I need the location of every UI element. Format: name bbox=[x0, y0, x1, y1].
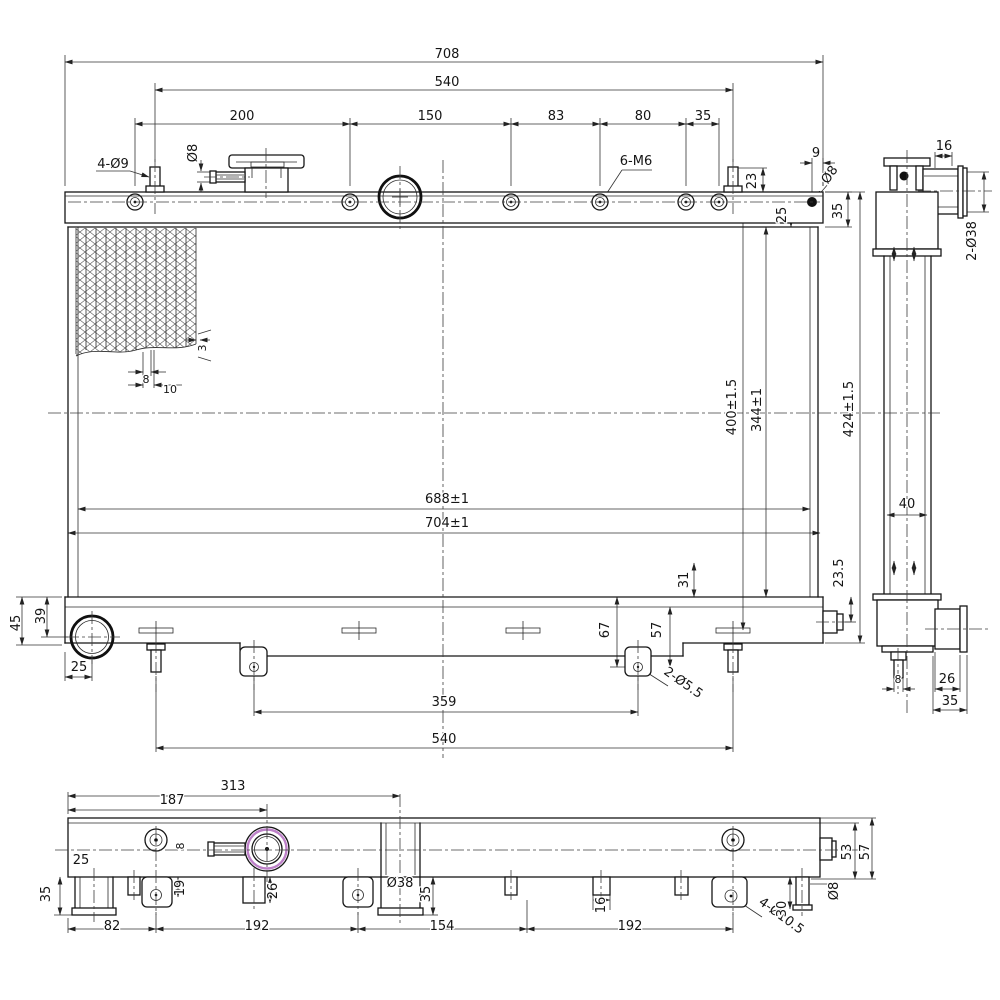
dim-label-front-10: 23 bbox=[745, 173, 760, 190]
dim-label-front-4: 83 bbox=[548, 109, 565, 124]
dim-label-front-28: 25 bbox=[71, 660, 88, 675]
radiator-drawing-page: Radiator three-view dimensional engineer… bbox=[0, 0, 1000, 1000]
dim-label-side-38: 35 bbox=[942, 694, 959, 709]
dim-label-side-36: 8 bbox=[895, 673, 902, 686]
dim-label-side-25: 40 bbox=[899, 497, 916, 512]
dim-label-side-37: 26 bbox=[939, 672, 956, 687]
dim-label-bottom-55: Ø8 bbox=[827, 882, 842, 901]
dim-label-bottom-50: 192 bbox=[245, 919, 270, 934]
side-core bbox=[884, 247, 931, 594]
dim-label-front-7: 4-Ø9 bbox=[97, 157, 128, 172]
dim-label-front-31: 67 bbox=[598, 622, 613, 639]
tab bbox=[593, 877, 610, 895]
dim-label-front-20: 688±1 bbox=[425, 492, 469, 507]
bottom-drain-pin bbox=[793, 877, 812, 910]
tab bbox=[675, 877, 688, 895]
dim-label-front-12: Ø8 bbox=[819, 163, 842, 187]
overflow-tube bbox=[213, 843, 245, 855]
dim-label-front-33: 2-Ø5.5 bbox=[661, 664, 706, 701]
dim-label-front-9: 6-M6 bbox=[620, 154, 652, 169]
dim-label-front-23: 344±1 bbox=[750, 388, 765, 432]
bottom-tank bbox=[65, 597, 843, 676]
radiator-drawing: Radiator three-view dimensional engineer… bbox=[0, 0, 1000, 1000]
dim-label-bottom-46: Ø38 bbox=[387, 876, 414, 891]
dim-label-bottom-42: 8 bbox=[174, 843, 187, 850]
bracket-82 bbox=[142, 877, 172, 907]
dim-label-front-34: 359 bbox=[432, 695, 457, 710]
dim-label-bottom-44: 19 bbox=[173, 880, 188, 897]
side-view bbox=[873, 158, 967, 678]
dim-label-bottom-52: 192 bbox=[618, 919, 643, 934]
dim-label-front-30: 23.5 bbox=[832, 559, 847, 588]
dim-label-side-16: 2-Ø38 bbox=[965, 221, 980, 261]
filler-cap-profile bbox=[210, 155, 304, 192]
dim-label-bottom-56: 53 bbox=[840, 844, 855, 861]
bottom-right-fitting bbox=[820, 838, 836, 860]
dim-label-front-17: 8 bbox=[143, 373, 150, 386]
dim-label-bottom-57: 57 bbox=[858, 844, 873, 861]
dim-label-front-29: 31 bbox=[677, 572, 692, 589]
bottom-view bbox=[68, 818, 836, 915]
dim-label-front-21: 704±1 bbox=[425, 516, 469, 531]
dim-label-bottom-45: 26 bbox=[266, 883, 281, 900]
dim-label-bottom-48: 16 bbox=[594, 897, 609, 914]
dim-label-front-27: 39 bbox=[34, 608, 49, 625]
dim-label-front-35: 540 bbox=[432, 732, 457, 747]
dim-label-side-15: 16 bbox=[936, 139, 953, 154]
side-bottom-tank bbox=[873, 594, 967, 678]
dim-label-front-13: 25 bbox=[775, 207, 790, 224]
bracket-right bbox=[712, 877, 747, 907]
dim-label-bottom-54: 30 bbox=[775, 901, 790, 918]
dim-label-front-24: 424±1.5 bbox=[842, 381, 857, 437]
dim-label-front-22: 400±1.5 bbox=[725, 379, 740, 435]
dim-label-front-6: 35 bbox=[695, 109, 712, 124]
dim-label-front-26: 45 bbox=[9, 615, 24, 632]
dim-label-front-1: 540 bbox=[435, 75, 460, 90]
dim-label-front-0: 708 bbox=[435, 47, 460, 62]
radiator-fins bbox=[76, 228, 196, 356]
dim-label-bottom-51: 154 bbox=[430, 919, 455, 934]
dim-label-front-5: 80 bbox=[635, 109, 652, 124]
dim-label-bottom-41: 25 bbox=[73, 853, 90, 868]
dim-label-front-19: 3 bbox=[196, 345, 209, 352]
dim-label-bottom-49: 82 bbox=[104, 919, 121, 934]
dim-label-front-3: 150 bbox=[418, 109, 443, 124]
dim-label-bottom-40: 187 bbox=[160, 793, 185, 808]
dim-label-front-18: 10 bbox=[163, 383, 177, 396]
dim-label-front-32: 57 bbox=[650, 622, 665, 639]
dim-label-front-11: 9 bbox=[812, 146, 820, 161]
dim-label-bottom-39: 313 bbox=[221, 779, 246, 794]
dim-label-bottom-47: 35 bbox=[419, 886, 434, 903]
dim-label-front-8: Ø8 bbox=[186, 144, 201, 163]
dim-label-front-2: 200 bbox=[230, 109, 255, 124]
dim-label-front-14: 35 bbox=[831, 203, 846, 220]
dim-label-bottom-43: 35 bbox=[39, 886, 54, 903]
